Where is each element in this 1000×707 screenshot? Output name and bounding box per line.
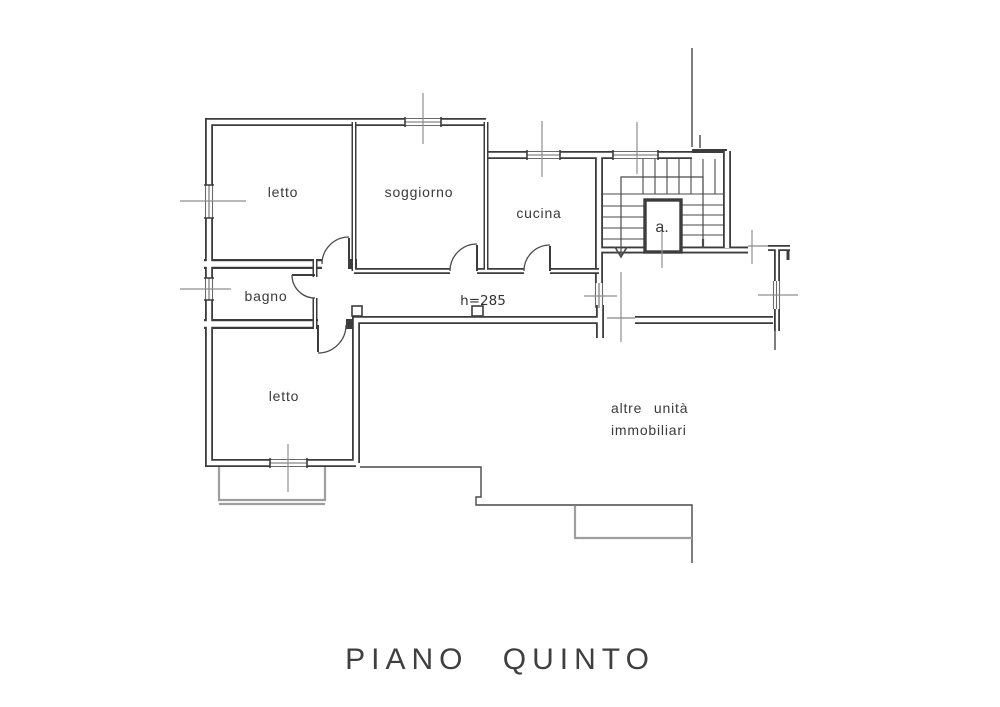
room-label-bagno: bagno <box>245 288 288 304</box>
room-label-letto2: letto <box>269 388 299 404</box>
floor-plan-drawing: letto soggiorno cucina bagno letto h=285… <box>0 0 1000 707</box>
window-stairwell-top <box>613 150 658 160</box>
boundary-other-units <box>360 467 692 563</box>
door-swing-arcs <box>292 237 550 353</box>
floor-plan-page: letto soggiorno cucina bagno letto h=285… <box>0 0 1000 707</box>
door-arc-bagno <box>292 275 315 298</box>
elevator-label: a. <box>655 219 668 236</box>
window-cucina-top <box>527 150 560 160</box>
stair-treads-left-flight <box>601 206 644 239</box>
interior-walls <box>315 122 599 329</box>
room-label-letto1: letto <box>268 184 298 200</box>
door-arc-letto1 <box>322 237 349 264</box>
door-leaves <box>292 238 550 352</box>
door-arc-soggiorno <box>450 244 477 271</box>
door-arc-cucina <box>524 245 550 271</box>
under-structures <box>219 467 692 538</box>
balcony-letto2 <box>219 467 325 500</box>
other-units-label-line2: immobiliari <box>611 422 687 438</box>
room-label-soggiorno: soggiorno <box>385 184 454 200</box>
ceiling-height-label: h=285 <box>460 293 506 309</box>
floor-title: PIANO QUINTO <box>345 643 655 676</box>
room-label-cucina: cucina <box>516 205 561 221</box>
lower-terrace <box>574 506 692 538</box>
interior-wall-cores <box>315 122 599 329</box>
door-arc-letto2 <box>318 325 346 353</box>
other-units-label-line1: altre unità <box>611 400 688 416</box>
